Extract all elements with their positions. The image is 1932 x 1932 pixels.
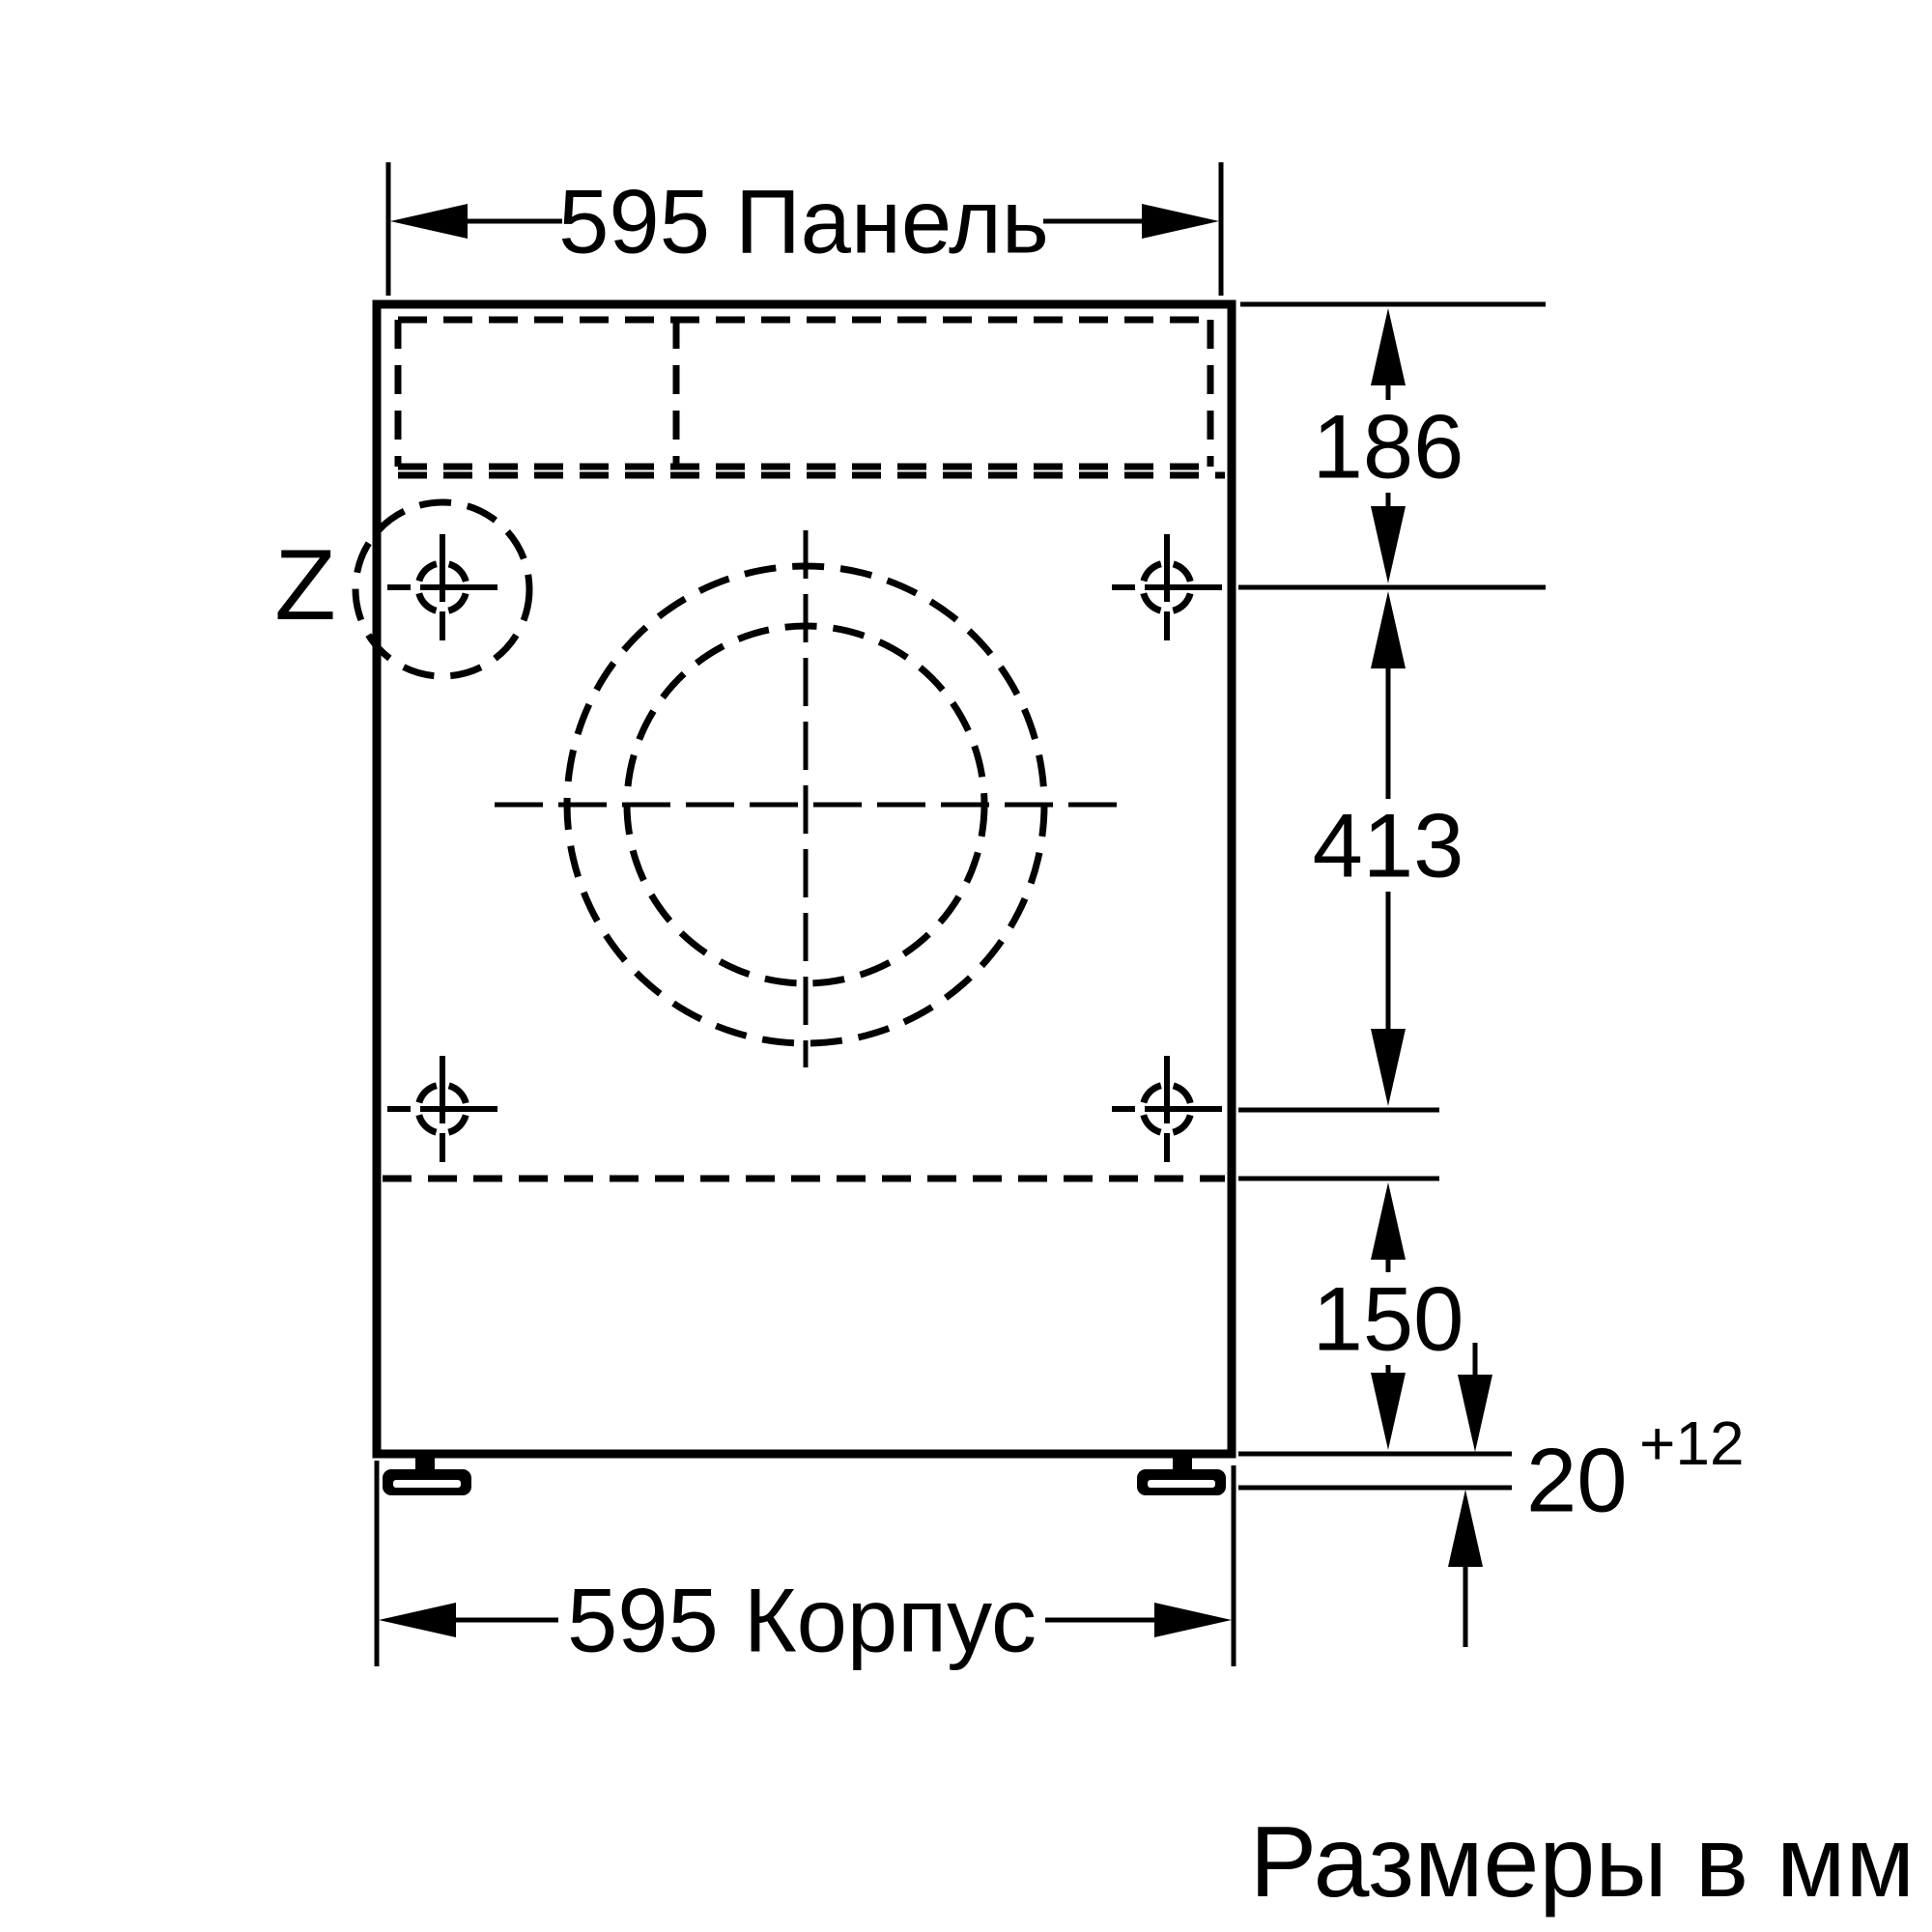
dim-20-tolerance-label: +12 (1639, 1408, 1745, 1478)
dimension-gap-20: 20 +12 (1448, 1343, 1745, 1647)
left-foot-slot (393, 1480, 461, 1488)
dim-413-label: 413 (1313, 795, 1464, 896)
dimension-body-width: 595 Корпус (377, 1461, 1234, 1671)
dim-186-arrow-up (1371, 308, 1406, 385)
body-width-label: 595 Корпус (567, 1570, 1037, 1671)
dim-413-arrow-up (1371, 591, 1406, 668)
units-note: Размеры в мм (1250, 1806, 1915, 1918)
dim-150-arrow-up (1371, 1182, 1406, 1260)
dim-20-arrow-up (1448, 1490, 1483, 1567)
drawing-canvas: Z 595 Панель 186 413 (0, 0, 1932, 1932)
control-panel-dashed-area (383, 320, 1225, 475)
panel-width-arrow-right (1142, 204, 1219, 239)
door (495, 530, 1119, 1067)
installation-drawing: Z 595 Панель 186 413 (0, 0, 1932, 1932)
dim-186-arrow-down (1371, 506, 1406, 583)
dimension-panel-width: 595 Панель (388, 162, 1221, 296)
right-foot (1137, 1456, 1226, 1495)
mounting-hole-top-left (387, 534, 497, 640)
dim-150-arrow-down (1371, 1373, 1406, 1450)
mounting-hole-top-right (1112, 534, 1222, 640)
mounting-hole-bottom-left (387, 1056, 497, 1162)
panel-width-label: 595 Панель (558, 171, 1049, 272)
left-foot (383, 1456, 471, 1495)
body-width-arrow-right (1154, 1603, 1232, 1637)
body-width-arrow-left (379, 1603, 456, 1637)
dim-20-arrow-down (1458, 1375, 1492, 1452)
dim-20-label: 20 (1526, 1430, 1628, 1531)
dim-186-label: 186 (1313, 396, 1464, 497)
dimension-150: 150 (1313, 1182, 1464, 1450)
detail-z-label: Z (274, 529, 336, 641)
panel-width-arrow-left (390, 204, 468, 239)
dimension-413: 413 (1313, 591, 1464, 1106)
dim-150-label: 150 (1313, 1268, 1464, 1370)
dim-413-arrow-down (1371, 1029, 1406, 1106)
dimension-186: 186 (1313, 308, 1464, 583)
mounting-hole-bottom-right (1112, 1056, 1222, 1162)
right-foot-slot (1148, 1480, 1215, 1488)
